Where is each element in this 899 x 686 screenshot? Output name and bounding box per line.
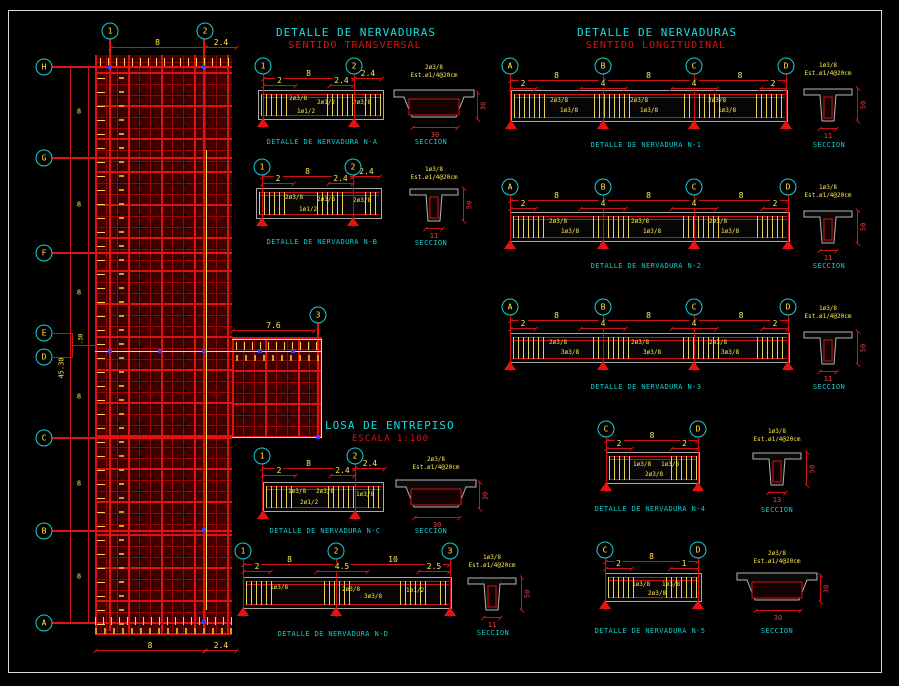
- dim-top-span: 2.4: [205, 47, 237, 48]
- grid-bubble-1: 1: [102, 23, 119, 40]
- support-triangle: [780, 120, 792, 129]
- grid-bubble: A: [502, 58, 519, 75]
- grid-bubble: C: [598, 421, 615, 438]
- grid-bubble-g: G: [36, 150, 53, 167]
- rebar-callout: 2ø3/8: [285, 195, 303, 201]
- grid-bubble: 2: [346, 58, 363, 75]
- beam-elevation: 1ø3/8 1ø3/8 2ø3/8: [606, 452, 700, 484]
- dim-value: 2.4: [361, 460, 379, 468]
- rebar-callout: 2ø3/8: [549, 340, 567, 346]
- dim-span: 2.4: [353, 176, 380, 177]
- plan-title: LOSA DE ENTREPISO: [325, 419, 455, 432]
- dim-value: 8: [552, 72, 561, 80]
- node-marker: [108, 349, 112, 353]
- rebar-callout: 2ø3/8: [645, 472, 663, 478]
- dim-value: 2.4: [359, 70, 377, 78]
- section-shape-tee: [752, 450, 802, 488]
- dim-value: 2.4: [212, 39, 230, 47]
- dim-section-height-line: [463, 188, 464, 222]
- stirrups: [671, 456, 697, 480]
- rebar-callout: 1ø3/8: [643, 229, 661, 235]
- node-marker: [291, 349, 295, 353]
- extension-edge: [232, 437, 322, 438]
- dim-sub: 4: [671, 208, 717, 209]
- dim-value: 1: [680, 560, 689, 568]
- stirrups: [513, 216, 545, 238]
- rebar-callout: 1ø3/8: [718, 108, 736, 114]
- rebar-callout: 3ø3/8: [364, 594, 382, 600]
- dim-sub: 4: [580, 208, 626, 209]
- title-transversal-1: DETALLE DE NERVADURAS: [276, 26, 436, 39]
- dim-sub: 2.5: [418, 571, 450, 572]
- dim-value: 4: [599, 80, 608, 88]
- beam-elevation: 2ø3/8 1ø3/8 2ø3/8 1ø3/8 2ø3/8 1ø3/8: [511, 90, 788, 122]
- title-longitudinal-1: DETALLE DE NERVADURAS: [577, 26, 737, 39]
- section-label: SECCION: [415, 528, 447, 535]
- dim-value: 11: [486, 621, 498, 629]
- section-note: Est.ø1/4@20cm: [805, 70, 852, 78]
- grid-bubble: D: [690, 421, 707, 438]
- dim-value: 2: [519, 200, 528, 208]
- stirrups: [246, 581, 272, 605]
- dim-section-height-line: [857, 331, 858, 365]
- section-note: 2ø3/8: [427, 456, 445, 464]
- dim-top-span: 8: [110, 47, 205, 48]
- rebar-callout: 1ø3/8: [633, 462, 651, 468]
- beam-elevation: 1ø3/8 2ø3/8 3ø3/8 1ø1/2: [243, 577, 452, 609]
- dim-value: 2.5: [425, 563, 443, 571]
- grid-bubble: C: [686, 58, 703, 75]
- rebar-callout: 2ø3/8: [289, 96, 307, 102]
- dim-value: 10: [386, 556, 400, 564]
- rebar-callout: 1ø3/8: [270, 585, 288, 591]
- title-transversal-2: SENTIDO TRANSVERSAL: [288, 40, 421, 51]
- grid-bubble: D: [780, 179, 797, 196]
- dim-value: 4: [599, 320, 608, 328]
- section-note: 1ø3/8: [483, 554, 501, 562]
- section-note: 2ø3/8: [425, 64, 443, 72]
- support-triangle: [330, 607, 342, 616]
- rebar-callout: 2ø3/8: [708, 98, 726, 104]
- beam-elevation: 2ø3/8 3ø3/8 2ø3/8 3ø3/8 2ø3/8 3ø3/8: [510, 333, 790, 363]
- bottom-rebar-line: [513, 237, 787, 238]
- rebar-callout: 3ø3/8: [643, 350, 661, 356]
- rebar-callout: 2ø3/8: [317, 197, 335, 203]
- detail-label: DETALLE DE NERVADURA N-D: [278, 631, 389, 638]
- dim-bottom-span: 8: [95, 650, 205, 651]
- waffle-slab-extension-hatch: [232, 337, 322, 438]
- rib-marks-left: [119, 70, 124, 625]
- dim-section-height-line: [479, 482, 480, 510]
- dim-sub: 4: [671, 88, 717, 89]
- support-triangle: [504, 240, 516, 249]
- stirrups: [513, 337, 545, 359]
- dim-value: 30: [483, 492, 490, 500]
- dim-value: 8: [304, 460, 313, 468]
- support-triangle: [237, 607, 249, 616]
- grid-bubble: 3: [442, 543, 459, 560]
- detail-label: DETALLE DE NERVADURA N-5: [595, 628, 706, 635]
- dim-value: 8: [552, 312, 561, 320]
- section-label: SECCION: [415, 139, 447, 146]
- section-label: SECCION: [761, 507, 793, 514]
- dim-sub: 2: [510, 328, 536, 329]
- dim-value: 8: [648, 432, 657, 440]
- support-triangle: [349, 510, 361, 519]
- support-triangle: [347, 217, 359, 226]
- rebar-callout: 2ø3/8: [316, 489, 334, 495]
- dim-value: 2.4: [333, 467, 351, 475]
- rebar-callout: 1ø3/8: [632, 582, 650, 588]
- rebar-callout: 2ø3/8: [550, 98, 568, 104]
- section-note: 1ø3/8: [819, 305, 837, 313]
- grid-bubble: A: [502, 299, 519, 316]
- dim-value: 2: [253, 563, 262, 571]
- dim-span: 8: [603, 320, 694, 321]
- dim-chain-line: [88, 67, 89, 622]
- dim-section-height-line: [857, 88, 858, 122]
- axis-h: [52, 437, 232, 439]
- support-triangle: [782, 240, 794, 249]
- grid-bubble: B: [595, 58, 612, 75]
- dim-sub: 2: [762, 208, 788, 209]
- dim-value: 13: [771, 496, 783, 504]
- beam-elevation: 2ø3/8 2ø3/8 1ø1/2 2ø3/8: [256, 188, 382, 219]
- rebar-callout: 3ø3/8: [561, 350, 579, 356]
- grid-bubble: C: [686, 179, 703, 196]
- grid-bubble-b: B: [36, 523, 53, 540]
- dim-span: 2.4: [355, 468, 385, 469]
- support-triangle: [688, 120, 700, 129]
- support-triangle: [692, 600, 704, 609]
- beam-elevation: 1ø3/8 1ø3/8 2ø3/8: [605, 573, 702, 602]
- support-triangle: [597, 120, 609, 129]
- node-marker: [202, 349, 206, 353]
- dim-value: 2: [274, 175, 283, 183]
- dim-value: 2: [771, 320, 780, 328]
- dim-section-width: 30: [412, 127, 458, 128]
- section-note: 1ø3/8: [819, 184, 837, 192]
- dim-section-width: 11: [819, 371, 837, 372]
- section-note: Est.ø1/4@20cm: [413, 464, 460, 472]
- grid-bubble: 2: [347, 448, 364, 465]
- cut-ticks-top: [100, 58, 232, 66]
- rebar-callout: 2ø3/8: [709, 340, 727, 346]
- dim-value: 8: [644, 72, 653, 80]
- beam-elevation: 2ø3/8 2ø1/2 1ø1/2 2ø3/8: [258, 90, 384, 120]
- dim-sub: 2: [671, 448, 698, 449]
- axis-ed-leader: [72, 345, 95, 346]
- detail-label: DETALLE DE NERVADURA N-A: [267, 139, 378, 146]
- support-triangle: [505, 120, 517, 129]
- rebar-callout: 1ø3/8: [288, 489, 306, 495]
- dim-value: 8: [77, 481, 81, 488]
- rebar-callout: 1ø1/2: [299, 207, 317, 213]
- section-note: 1ø3/8: [768, 428, 786, 436]
- dim-overall: 45.30: [59, 357, 66, 378]
- rebar-callout: 1ø1/2: [406, 588, 424, 594]
- stirrups: [594, 94, 630, 118]
- section-shape-tee: [409, 186, 459, 224]
- grid-bubble: D: [780, 299, 797, 316]
- stirrups: [609, 456, 633, 480]
- grid-bubble-f: F: [36, 245, 53, 262]
- dim-section-width: 11: [819, 128, 837, 129]
- dim-section-width: 11: [425, 228, 443, 229]
- support-triangle: [257, 510, 269, 519]
- dim-value: 2: [519, 80, 528, 88]
- dim-sub: 2: [510, 88, 536, 89]
- grid-bubble: 1: [254, 159, 271, 176]
- axis-h: [52, 157, 232, 159]
- rebar-callout: 3ø3/8: [721, 350, 739, 356]
- rebar-callout: 1ø1/2: [297, 109, 315, 115]
- dim-section-width: 11: [483, 617, 501, 618]
- dim-value: 8: [644, 312, 653, 320]
- dim-value: 2: [769, 80, 778, 88]
- rebar-callout: 1ø3/8: [561, 229, 579, 235]
- dim-value: 8: [303, 168, 312, 176]
- section-note: 1ø3/8: [425, 166, 443, 174]
- section-shape-tee: [803, 208, 853, 246]
- grid-bubble: 2: [328, 543, 345, 560]
- dim-value: 8: [737, 192, 746, 200]
- dim-value: 8: [77, 109, 81, 116]
- dim-value: 2: [614, 560, 623, 568]
- dim-value: 4: [690, 320, 699, 328]
- axis-ed-highlight: [95, 351, 322, 352]
- dim-extension: 7.6: [232, 330, 315, 331]
- dim-sub: 2.4: [330, 475, 355, 476]
- support-triangle: [692, 482, 704, 491]
- grid-bubble: B: [595, 179, 612, 196]
- stirrups: [757, 337, 787, 359]
- dim-value: 11: [822, 254, 834, 262]
- dim-value: 30: [772, 614, 784, 622]
- grid-bubble-2: 2: [197, 23, 214, 40]
- dim-sub: 2: [762, 328, 788, 329]
- stirrups: [757, 216, 787, 238]
- dim-section-width: 13: [768, 492, 786, 493]
- node-marker: [202, 528, 206, 532]
- dim-sub: 2: [510, 208, 536, 209]
- support-triangle: [688, 361, 700, 370]
- dim-sub: 4: [580, 328, 626, 329]
- support-triangle: [597, 240, 609, 249]
- grid-bubble-h: H: [36, 59, 53, 76]
- section-shape-wide: [393, 88, 475, 120]
- dim-section-height-line: [521, 577, 522, 611]
- section-shape-tee: [803, 86, 853, 124]
- dim-value: 4: [690, 200, 699, 208]
- dim-value: 8: [146, 642, 155, 650]
- section-label: SECCION: [415, 240, 447, 247]
- node-marker: [108, 65, 112, 69]
- plan-scale: ESCALA 1:100: [352, 434, 429, 444]
- grid-bubble: 1: [255, 58, 272, 75]
- detail-label: DETALLE DE NERVADURA N-4: [595, 506, 706, 513]
- axis-v-2: [203, 39, 205, 631]
- rebar-callout: 2ø3/8: [709, 219, 727, 225]
- dim-value: 50: [467, 201, 474, 209]
- rebar-callout: 2ø3/8: [631, 219, 649, 225]
- section-note: 1ø3/8: [819, 62, 837, 70]
- stirrups: [514, 94, 546, 118]
- support-triangle: [688, 240, 700, 249]
- section-label: SECCION: [813, 263, 845, 270]
- dim-sub: 4.5: [316, 571, 368, 572]
- stirrups: [756, 94, 785, 118]
- axis-h: [52, 252, 232, 254]
- support-triangle: [597, 361, 609, 370]
- dim-value: 8: [77, 574, 81, 581]
- dim-sub: 2.4: [328, 183, 353, 184]
- rebar-callout: 1ø3/8: [356, 492, 374, 498]
- cut-ticks-left: [97, 70, 105, 625]
- rebar-callout: 2ø3/8: [342, 587, 360, 593]
- dim-sub: 2: [262, 183, 294, 184]
- grid-bubble: C: [597, 542, 614, 559]
- rebar-callout: 2ø3/8: [630, 98, 648, 104]
- dim-value: 2: [275, 77, 284, 85]
- dim-value: 8: [77, 290, 81, 297]
- support-triangle: [504, 361, 516, 370]
- grid-bubble: A: [502, 179, 519, 196]
- dim-value: 2: [615, 440, 624, 448]
- node-marker: [202, 65, 206, 69]
- bottom-rebar-line: [513, 358, 787, 359]
- dim-value: 30: [481, 102, 488, 110]
- rib-marks-extension: [236, 355, 320, 361]
- stirrups: [261, 94, 287, 116]
- dim-value: 8: [285, 556, 294, 564]
- grid-bubble: 2: [345, 159, 362, 176]
- grid-bubble-a: A: [36, 615, 53, 632]
- dim-section-height-line: [806, 452, 807, 486]
- detail-label: DETALLE DE NERVADURA N-B: [267, 239, 378, 246]
- dim-value: 8: [644, 192, 653, 200]
- dim-sub: 4: [580, 88, 626, 89]
- dim-section-height-line: [477, 92, 478, 120]
- dim-value: 11: [822, 132, 834, 140]
- dim-sub: 2: [263, 85, 296, 86]
- dim-sub: 2: [262, 475, 296, 476]
- dim-value: 8: [77, 394, 81, 401]
- section-label: SECCION: [813, 384, 845, 391]
- detail-label: DETALLE DE NERVADURA N-C: [270, 528, 381, 535]
- section-note: Est.ø1/4@20cm: [754, 558, 801, 566]
- grid-bubble: 1: [254, 448, 271, 465]
- dim-value: 7.6: [264, 322, 282, 330]
- section-shape-wide: [736, 571, 818, 603]
- support-triangle: [257, 118, 269, 127]
- grid-bubble-d: D: [36, 349, 53, 366]
- dim-sub: 4: [671, 328, 717, 329]
- grid-bubble: B: [595, 299, 612, 316]
- dim-value: 8: [552, 192, 561, 200]
- dim-value: 8: [77, 202, 81, 209]
- section-note: Est.ø1/4@20cm: [469, 562, 516, 570]
- beam-elevation: 2ø3/8 1ø3/8 2ø3/8 1ø3/8 2ø3/8 1ø3/8: [510, 212, 790, 242]
- rebar-callout: 1ø3/8: [560, 108, 578, 114]
- section-label: SECCION: [477, 630, 509, 637]
- cut-ticks-extension: [236, 342, 320, 350]
- dim-value: 2.4: [331, 175, 349, 183]
- section-label: SECCION: [813, 142, 845, 149]
- rebar-callout: 2ø3/8: [353, 100, 371, 106]
- grid-bubble-e: E: [36, 325, 53, 342]
- section-label: SECCION: [761, 628, 793, 635]
- cut-ticks-bottom: [95, 617, 237, 625]
- rebar-callout: 1ø3/8: [640, 108, 658, 114]
- dim-value: 50: [525, 590, 532, 598]
- grid-bubble: C: [686, 299, 703, 316]
- rebar-callout: 2ø3/8: [549, 219, 567, 225]
- dim-section-height-line: [857, 210, 858, 244]
- node-marker: [158, 349, 162, 353]
- extension-edge: [232, 339, 322, 340]
- dim-value: 30: [824, 585, 831, 593]
- support-triangle: [600, 482, 612, 491]
- dim-value: 50: [861, 101, 868, 109]
- stirrups: [593, 216, 629, 238]
- support-triangle: [444, 607, 456, 616]
- dim-value: 8: [736, 72, 745, 80]
- rebar-callout: 2ø3/8: [353, 198, 371, 204]
- dim-bottom-span: 2.4: [205, 650, 237, 651]
- axis-v-2-highlight: [206, 150, 207, 610]
- waffle-slab-hatch: [95, 55, 232, 635]
- title-longitudinal-2: SENTIDO LONGITUDINAL: [586, 40, 726, 51]
- dim-span: 8: [603, 200, 694, 201]
- axis-v-3: [317, 323, 319, 437]
- dim-ed: .30: [78, 334, 85, 345]
- detail-label: DETALLE DE NERVADURA N-3: [591, 384, 702, 391]
- dim-span: 2.4: [354, 78, 382, 79]
- node-marker: [258, 349, 262, 353]
- detail-label: DETALLE DE NERVADURA N-2: [591, 263, 702, 270]
- dim-chain-line: [70, 67, 71, 622]
- dim-section-width: 11: [819, 250, 837, 251]
- beam-elevation: 1ø3/8 2ø3/8 2ø1/2 1ø3/8: [263, 482, 384, 512]
- dim-value: 4.5: [333, 563, 351, 571]
- section-note: Est.ø1/4@20cm: [411, 72, 458, 80]
- section-shape-tee: [467, 575, 517, 613]
- support-triangle: [599, 600, 611, 609]
- rebar-callout: 2ø1/2: [300, 500, 318, 506]
- stirrups: [324, 581, 354, 605]
- rebar-callout: 1ø3/8: [721, 229, 739, 235]
- dim-value: 2: [275, 467, 284, 475]
- axis-v-1: [109, 39, 111, 631]
- grid-bubble: D: [778, 58, 795, 75]
- grid-bubble-3: 3: [310, 307, 327, 324]
- dim-value: 8: [647, 553, 656, 561]
- dim-value: 8: [153, 39, 162, 47]
- dim-value: 50: [861, 223, 868, 231]
- dim-value: 2.4: [212, 642, 230, 650]
- dim-value: 2.4: [332, 77, 350, 85]
- bottom-rebar-line: [514, 117, 785, 118]
- section-note: 2ø3/8: [768, 550, 786, 558]
- rebar-callout: 2ø3/8: [631, 340, 649, 346]
- section-note: Est.ø1/4@20cm: [411, 174, 458, 182]
- support-triangle: [348, 118, 360, 127]
- dim-value: 2: [680, 440, 689, 448]
- detail-label: DETALLE DE NERVADURA N-1: [591, 142, 702, 149]
- dim-sub: 2: [760, 88, 786, 89]
- dim-sub: 1: [670, 568, 698, 569]
